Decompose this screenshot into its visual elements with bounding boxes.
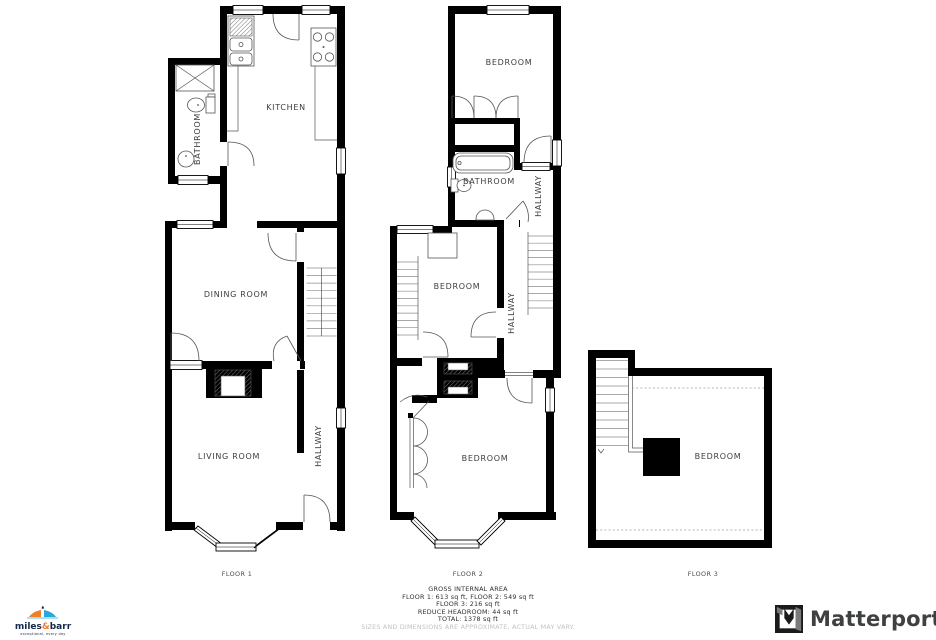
agency-tagline: exceptional, every day [8,632,78,637]
floor-1-plan: KITCHEN BATHROOM DINING ROOM LIVING ROOM… [160,0,350,560]
stair-direction-arrow [598,449,604,453]
stove [311,28,336,66]
matterport-logo: Matterport [775,605,936,633]
area-summary: GROSS INTERNAL AREA FLOOR 1: 613 sq ft, … [308,586,628,632]
matterport-wordmark: Matterport [810,607,936,631]
room-label-bedroom-middle: BEDROOM [434,282,481,291]
shower [176,65,215,97]
floor-3-label: FLOOR 3 [658,570,748,578]
staircase-up [528,232,553,315]
room-label-bedroom-front: BEDROOM [486,58,533,67]
room-label-bathroom: BATHROOM [193,113,202,165]
basin [178,151,194,167]
wardrobe-doors [452,96,518,118]
area-summary-disclaimer: SIZES AND DIMENSIONS ARE APPROXIMATE, AC… [308,624,628,632]
agency-name: miles&barr [8,623,78,632]
bay-window [411,517,505,548]
floor-3-room-labels: BEDROOM [695,452,742,461]
floor-2-walls [390,6,561,520]
room-label-kitchen: KITCHEN [266,103,306,112]
bay-window [194,526,282,551]
room-label-bathroom: BATHROOM [463,177,515,186]
matterport-icon [775,605,803,633]
basin [476,210,494,220]
kitchen-sink [228,16,254,66]
room-label-dining-room: DINING ROOM [204,290,268,299]
room-label-hallway: HALLWAY [314,425,323,467]
agency-sail-icon [23,606,63,619]
wardrobe-box [428,233,457,258]
floor-2-windows [397,6,562,549]
floor-2-label: FLOOR 2 [423,570,513,578]
fireplace [215,370,251,396]
room-label-hallway-lower: HALLWAY [507,292,516,334]
agency-logo: miles&barr exceptional, every day [8,604,78,637]
floor-3-plan: BEDROOM [585,345,780,560]
floorplan-page: KITCHEN BATHROOM DINING ROOM LIVING ROOM… [0,0,936,640]
room-label-living-room: LIVING ROOM [198,452,260,461]
floor-1-label: FLOOR 1 [192,570,282,578]
staircase-down [397,256,418,340]
floor-2-plan: BEDROOM BATHROOM HALLWAY BEDROOM HALLWAY… [385,0,570,560]
room-label-bedroom: BEDROOM [695,452,742,461]
chimney-stack [643,438,680,476]
staircase [307,268,337,336]
closet-doors [410,418,428,488]
bathtub [453,153,513,173]
room-label-bedroom-rear: BEDROOM [462,454,509,463]
room-label-hallway-upper: HALLWAY [534,175,543,217]
toilet [188,97,216,113]
